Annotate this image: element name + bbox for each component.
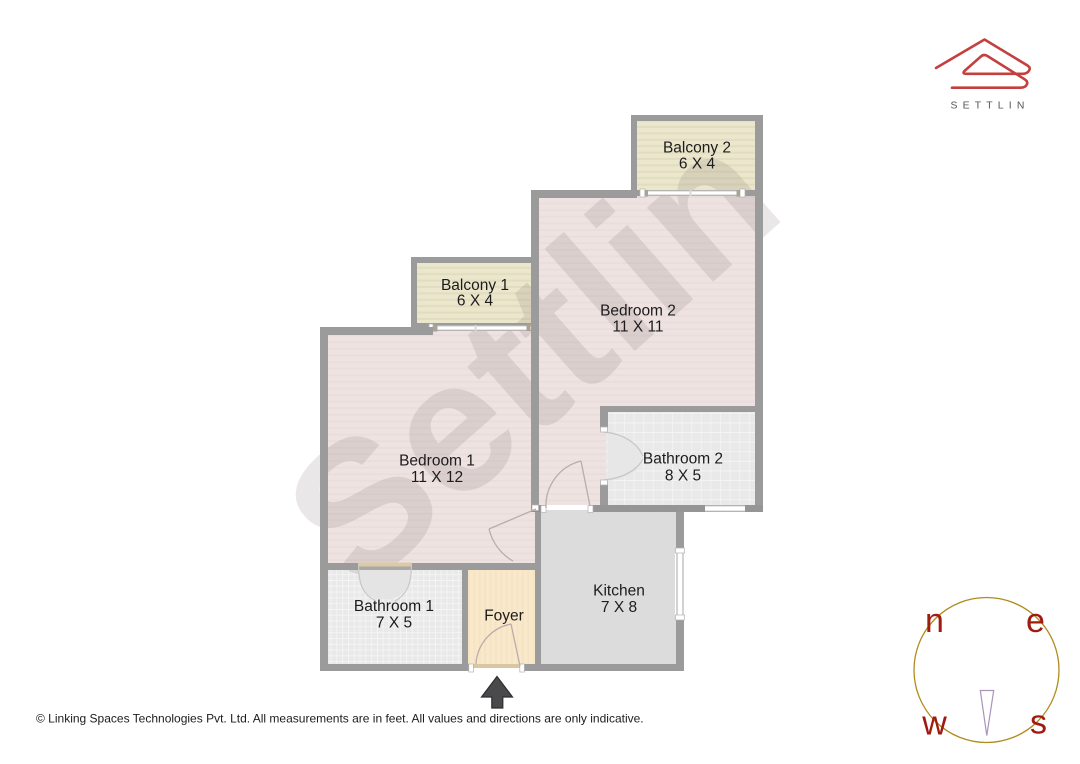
svg-text:11 X 11: 11 X 11 [612, 319, 663, 336]
svg-text:6 X 4: 6 X 4 [457, 293, 494, 310]
svg-text:Balcony 2: Balcony 2 [663, 140, 731, 157]
svg-text:7 X 8: 7 X 8 [601, 599, 637, 616]
svg-text:SETTLIN: SETTLIN [950, 100, 1029, 111]
svg-text:w: w [921, 705, 947, 743]
svg-text:7 X 5: 7 X 5 [376, 615, 412, 632]
svg-text:Bedroom 1: Bedroom 1 [399, 453, 475, 470]
svg-text:Foyer: Foyer [484, 608, 524, 625]
svg-text:Bathroom 1: Bathroom 1 [354, 598, 434, 615]
svg-text:© Linking Spaces Technologies: © Linking Spaces Technologies Pvt. Ltd. … [36, 712, 644, 726]
svg-text:11 X 12: 11 X 12 [411, 469, 463, 486]
svg-text:6 X 4: 6 X 4 [679, 156, 716, 173]
svg-text:8 X 5: 8 X 5 [665, 468, 701, 485]
svg-text:Bedroom 2: Bedroom 2 [600, 303, 676, 320]
svg-text:Balcony 1: Balcony 1 [441, 277, 509, 294]
svg-text:Kitchen: Kitchen [593, 583, 645, 600]
svg-text:e: e [1026, 602, 1045, 640]
svg-text:Bathroom 2: Bathroom 2 [643, 451, 723, 468]
svg-text:s: s [1030, 704, 1047, 742]
svg-text:n: n [925, 602, 944, 640]
